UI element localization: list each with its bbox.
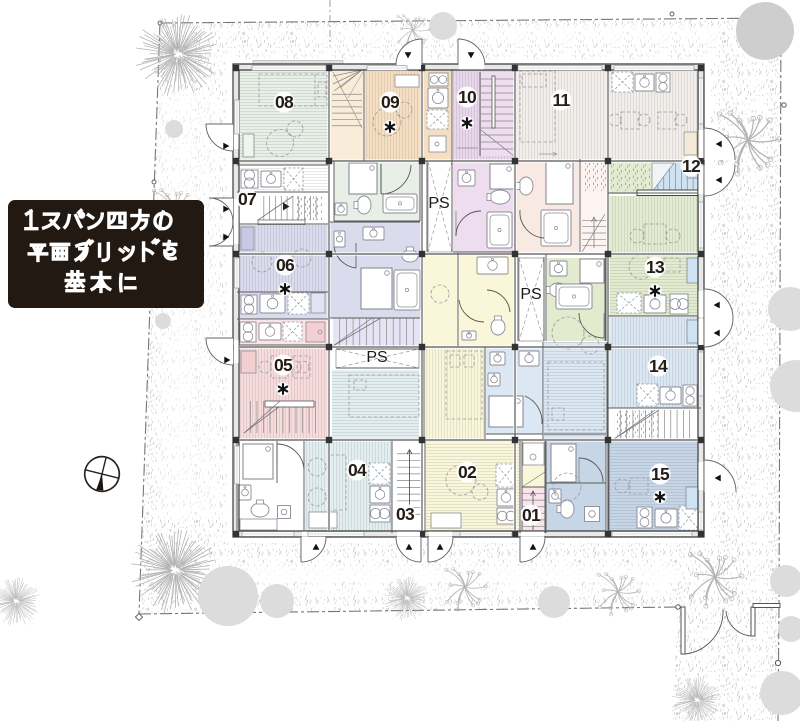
- svg-text:02: 02: [458, 462, 477, 482]
- svg-text:13: 13: [646, 257, 665, 277]
- svg-text:03: 03: [396, 504, 415, 524]
- svg-text:10: 10: [458, 87, 477, 107]
- svg-text:PS: PS: [366, 349, 387, 366]
- svg-text:05: 05: [274, 355, 293, 375]
- svg-text:11: 11: [552, 90, 570, 110]
- svg-text:04: 04: [348, 460, 367, 480]
- svg-text:PS: PS: [428, 195, 449, 212]
- svg-text:08: 08: [275, 92, 294, 112]
- svg-text:07: 07: [238, 189, 256, 209]
- svg-text:01: 01: [522, 505, 541, 525]
- svg-text:06: 06: [276, 255, 295, 275]
- svg-text:12: 12: [682, 156, 701, 176]
- svg-text:15: 15: [651, 464, 670, 484]
- svg-text:09: 09: [381, 92, 400, 112]
- svg-text:PS: PS: [520, 286, 541, 303]
- svg-text:14: 14: [649, 356, 668, 376]
